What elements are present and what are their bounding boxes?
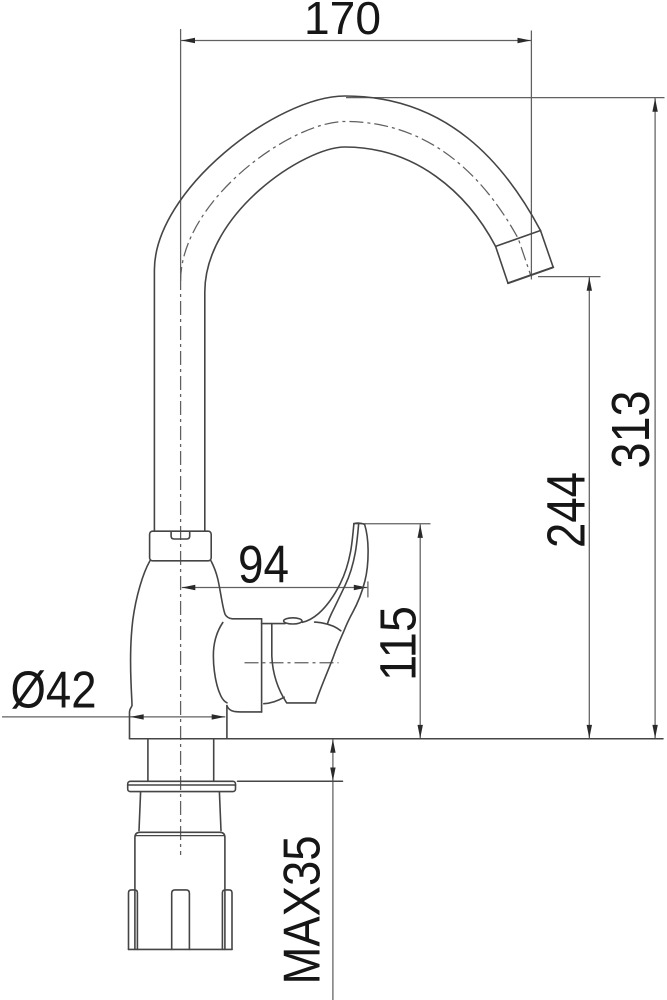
svg-text:Ø42: Ø42 — [11, 662, 97, 720]
svg-text:313: 313 — [601, 391, 661, 469]
svg-text:170: 170 — [304, 0, 381, 44]
svg-text:MAX35: MAX35 — [273, 836, 331, 985]
svg-text:244: 244 — [537, 472, 597, 548]
svg-text:94: 94 — [238, 536, 289, 595]
svg-text:115: 115 — [369, 606, 426, 681]
